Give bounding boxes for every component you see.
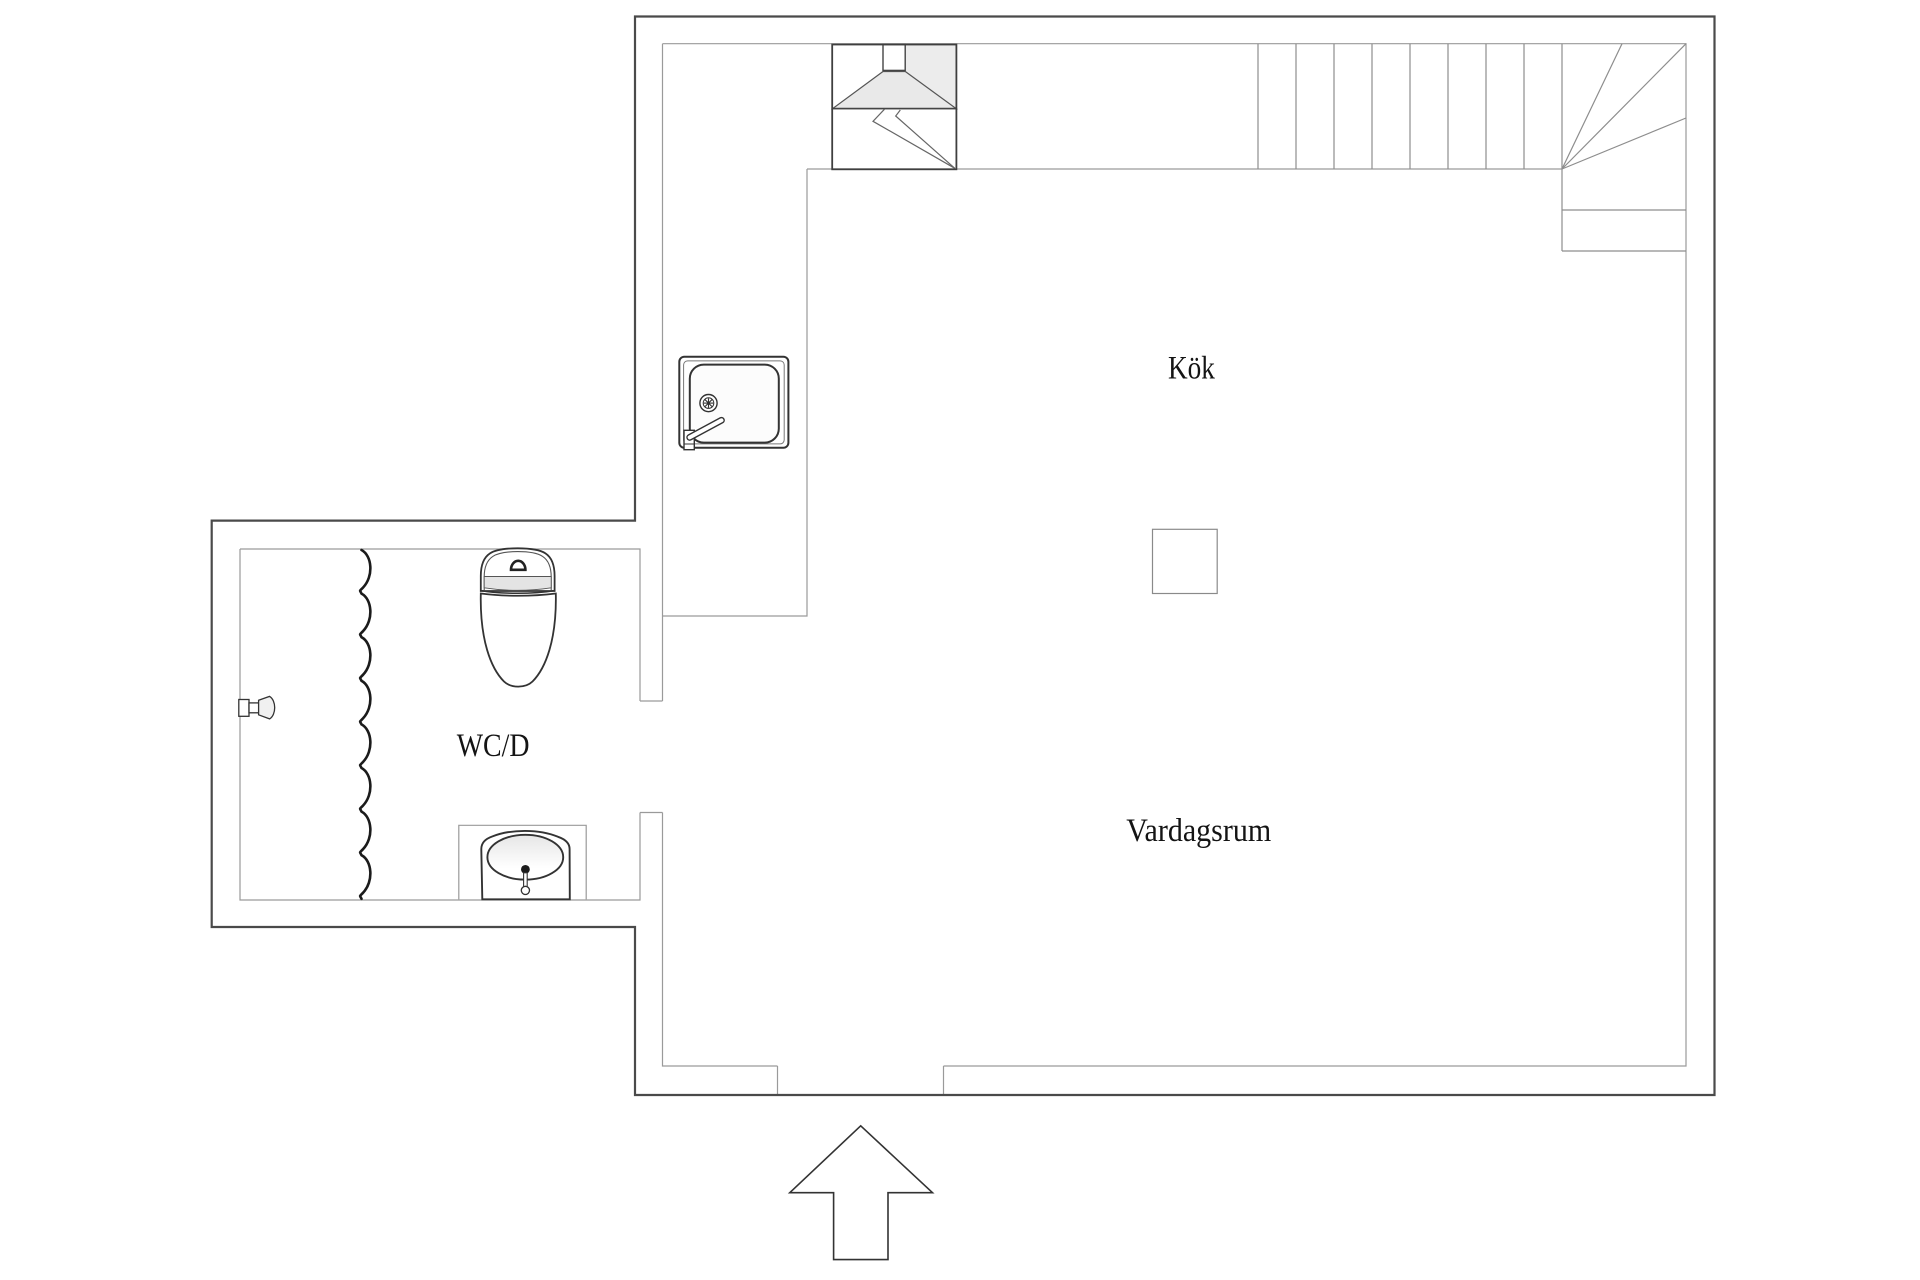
svg-text:Kök: Kök — [1168, 350, 1215, 386]
svg-text:Vardagsrum: Vardagsrum — [1126, 813, 1271, 849]
svg-text:WC/D: WC/D — [457, 728, 530, 764]
